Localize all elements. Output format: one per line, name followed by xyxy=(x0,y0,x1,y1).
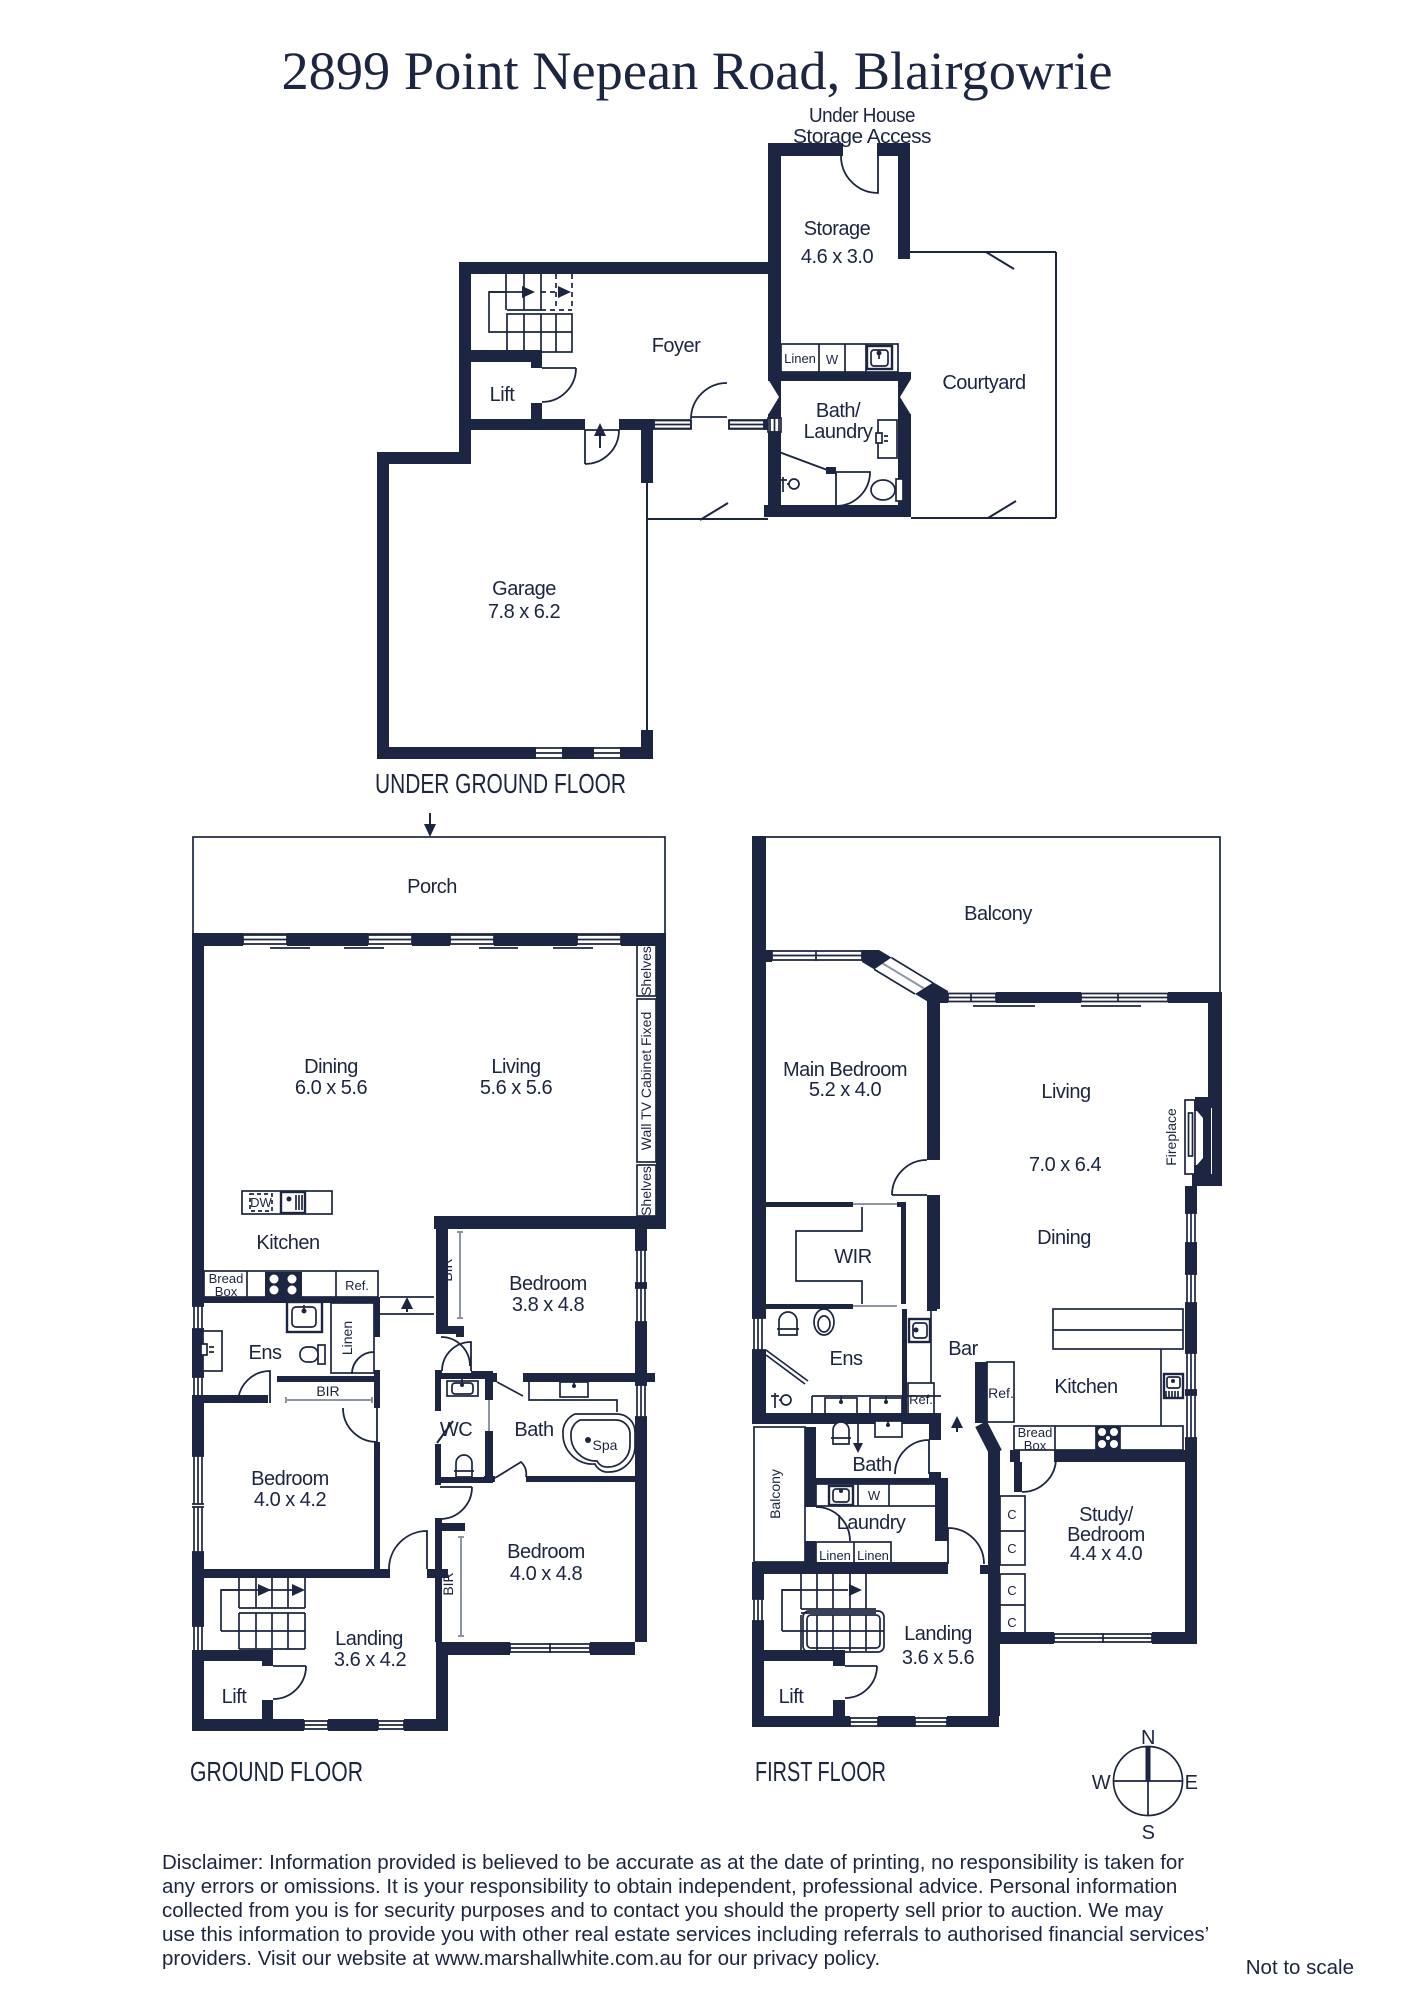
svg-text:S: S xyxy=(1142,1822,1155,1844)
svg-text:Ens: Ens xyxy=(249,1342,282,1364)
svg-text:Bath: Bath xyxy=(514,1419,553,1441)
svg-text:Kitchen: Kitchen xyxy=(256,1232,319,1254)
svg-text:Lift: Lift xyxy=(490,384,516,406)
svg-text:Ref.: Ref. xyxy=(909,1392,933,1407)
svg-text:Ref.: Ref. xyxy=(345,1278,369,1293)
svg-text:Linen: Linen xyxy=(339,1321,355,1355)
svg-text:6.0 x 5.6: 6.0 x 5.6 xyxy=(295,1077,368,1099)
svg-text:Disclaimer: Information provid: Disclaimer: Information provided is beli… xyxy=(162,1851,1184,1874)
svg-text:W: W xyxy=(868,1488,881,1503)
svg-text:Dining: Dining xyxy=(304,1056,358,1078)
svg-text:3.6 x 5.6: 3.6 x 5.6 xyxy=(902,1647,975,1669)
svg-text:Foyer: Foyer xyxy=(652,335,701,357)
svg-text:Landing: Landing xyxy=(904,1623,972,1645)
svg-text:Bath: Bath xyxy=(852,1454,891,1476)
svg-text:FIRST FLOOR: FIRST FLOOR xyxy=(755,1756,886,1787)
svg-text:Bedroom: Bedroom xyxy=(509,1273,587,1295)
svg-text:Linen: Linen xyxy=(857,1548,889,1563)
svg-text:Laundry: Laundry xyxy=(804,421,873,443)
svg-text:Laundry: Laundry xyxy=(837,1512,906,1534)
svg-text:Fireplace: Fireplace xyxy=(1163,1108,1179,1166)
svg-text:Living: Living xyxy=(491,1056,540,1078)
svg-text:W: W xyxy=(1092,1772,1111,1794)
svg-text:C: C xyxy=(1007,1507,1016,1522)
svg-text:WIR: WIR xyxy=(834,1246,871,1268)
svg-text:Porch: Porch xyxy=(407,876,457,898)
svg-text:7.8 x 6.2: 7.8 x 6.2 xyxy=(488,601,561,623)
svg-text:2899 Point Nepean Road, Blairg: 2899 Point Nepean Road, Blairgowrie xyxy=(282,41,1113,101)
svg-text:any errors or omissions. It is: any errors or omissions. It is your resp… xyxy=(162,1875,1177,1898)
svg-text:Balcony: Balcony xyxy=(767,1469,783,1519)
svg-text:WC: WC xyxy=(440,1419,472,1441)
svg-text:Ref.: Ref. xyxy=(988,1385,1014,1401)
svg-text:C: C xyxy=(1007,1615,1016,1630)
svg-text:Linen: Linen xyxy=(784,351,816,366)
svg-text:GROUND FLOOR: GROUND FLOOR xyxy=(190,1756,363,1787)
svg-text:Bar: Bar xyxy=(948,1338,978,1360)
svg-text:E: E xyxy=(1185,1772,1198,1794)
svg-text:W: W xyxy=(826,352,839,367)
svg-text:Spa: Spa xyxy=(593,1437,618,1453)
svg-text:Lift: Lift xyxy=(779,1686,805,1708)
svg-text:Storage: Storage xyxy=(804,218,871,240)
svg-text:BIR: BIR xyxy=(316,1383,339,1399)
svg-text:Lift: Lift xyxy=(222,1686,248,1708)
svg-text:Box: Box xyxy=(215,1284,238,1299)
svg-text:Landing: Landing xyxy=(335,1628,403,1650)
svg-text:Bedroom: Bedroom xyxy=(507,1541,585,1563)
svg-text:Box: Box xyxy=(1024,1438,1047,1453)
svg-text:use this information to provid: use this information to provide you with… xyxy=(162,1923,1209,1946)
svg-text:4.6 x 3.0: 4.6 x 3.0 xyxy=(801,246,874,268)
svg-text:4.0 x 4.8: 4.0 x 4.8 xyxy=(510,1563,583,1585)
svg-text:N: N xyxy=(1141,1727,1155,1749)
svg-text:Linen: Linen xyxy=(819,1548,851,1563)
svg-text:UNDER GROUND FLOOR: UNDER GROUND FLOOR xyxy=(375,768,626,799)
svg-text:Not to scale: Not to scale xyxy=(1246,1956,1354,1979)
svg-text:3.6 x 4.2: 3.6 x 4.2 xyxy=(334,1649,407,1671)
svg-text:providers. Visit our website a: providers. Visit our website at www.mars… xyxy=(162,1947,880,1970)
svg-text:Shelves: Shelves xyxy=(638,946,654,996)
svg-text:Garage: Garage xyxy=(492,578,556,600)
svg-text:Study/: Study/ xyxy=(1079,1504,1134,1526)
svg-text:Under House: Under House xyxy=(809,105,915,127)
svg-text:Balcony: Balcony xyxy=(964,903,1032,925)
svg-text:Bedroom: Bedroom xyxy=(251,1468,329,1490)
svg-text:7.0 x 6.4: 7.0 x 6.4 xyxy=(1029,1154,1102,1176)
svg-text:Kitchen: Kitchen xyxy=(1054,1376,1117,1398)
svg-text:collected from you is for secu: collected from you is for security purpo… xyxy=(162,1899,1164,1922)
svg-text:Bath/: Bath/ xyxy=(816,400,861,422)
svg-text:Shelves: Shelves xyxy=(638,1166,654,1216)
svg-text:BIR: BIR xyxy=(439,1258,455,1281)
svg-text:C: C xyxy=(1007,1541,1016,1556)
svg-text:Living: Living xyxy=(1041,1081,1090,1103)
svg-text:5.2 x 4.0: 5.2 x 4.0 xyxy=(809,1079,882,1101)
svg-text:3.8 x 4.8: 3.8 x 4.8 xyxy=(512,1294,585,1316)
svg-text:DW: DW xyxy=(250,1195,272,1210)
svg-text:Dining: Dining xyxy=(1037,1227,1091,1249)
svg-text:5.6 x 5.6: 5.6 x 5.6 xyxy=(480,1077,553,1099)
svg-text:Main Bedroom: Main Bedroom xyxy=(783,1059,907,1081)
svg-text:Courtyard: Courtyard xyxy=(942,372,1025,394)
svg-text:C: C xyxy=(1007,1583,1016,1598)
svg-text:Ens: Ens xyxy=(830,1348,863,1370)
svg-text:Wall TV Cabinet Fixed: Wall TV Cabinet Fixed xyxy=(638,1012,654,1151)
svg-text:4.0 x 4.2: 4.0 x 4.2 xyxy=(254,1489,327,1511)
svg-text:4.4 x 4.0: 4.4 x 4.0 xyxy=(1070,1543,1143,1565)
